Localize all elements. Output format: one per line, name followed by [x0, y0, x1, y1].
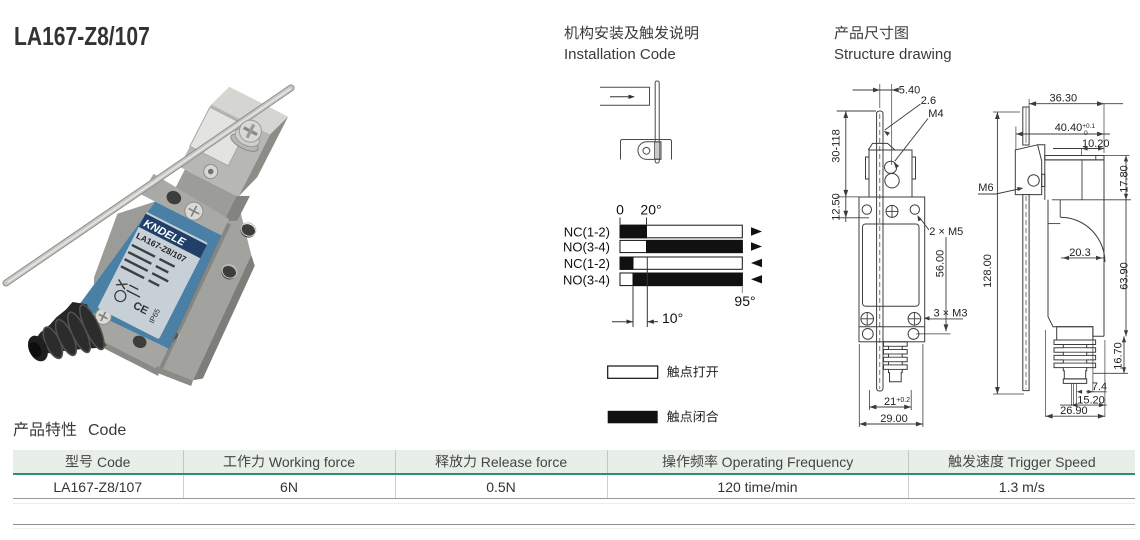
svg-text:20°: 20° — [640, 202, 661, 218]
svg-text:10.20: 10.20 — [1082, 138, 1110, 150]
svg-text:56.00: 56.00 — [935, 250, 947, 278]
svg-text:2.6: 2.6 — [921, 95, 936, 107]
svg-text:63.90: 63.90 — [1119, 262, 1131, 290]
svg-text:NC(1-2): NC(1-2) — [564, 256, 610, 271]
svg-text:29.00: 29.00 — [880, 413, 908, 425]
svg-text:10°: 10° — [662, 310, 683, 326]
svg-text:NO(3-4): NO(3-4) — [563, 272, 610, 287]
svg-text:128.00: 128.00 — [982, 254, 994, 288]
svg-text:2 × M5: 2 × M5 — [929, 226, 963, 238]
svg-text:16.70: 16.70 — [1113, 342, 1125, 370]
svg-text:17.80: 17.80 — [1119, 165, 1131, 193]
svg-text:M4: M4 — [928, 108, 943, 120]
svg-text:36.30: 36.30 — [1050, 93, 1078, 105]
svg-text:95°: 95° — [734, 293, 755, 309]
svg-text:M6: M6 — [978, 182, 993, 194]
svg-text:5.40: 5.40 — [899, 85, 920, 97]
svg-text:NC(1-2): NC(1-2) — [564, 225, 610, 240]
svg-text:12.50: 12.50 — [831, 193, 843, 221]
svg-text:20.3: 20.3 — [1069, 247, 1090, 259]
svg-text:3 × M3: 3 × M3 — [934, 308, 968, 320]
svg-text:40.40+0.10: 40.40+0.10 — [1055, 122, 1096, 137]
svg-text:30-118: 30-118 — [831, 129, 843, 162]
svg-text:26.90: 26.90 — [1060, 405, 1088, 417]
svg-text:NO(3-4): NO(3-4) — [563, 240, 610, 255]
svg-text:0: 0 — [616, 202, 624, 218]
